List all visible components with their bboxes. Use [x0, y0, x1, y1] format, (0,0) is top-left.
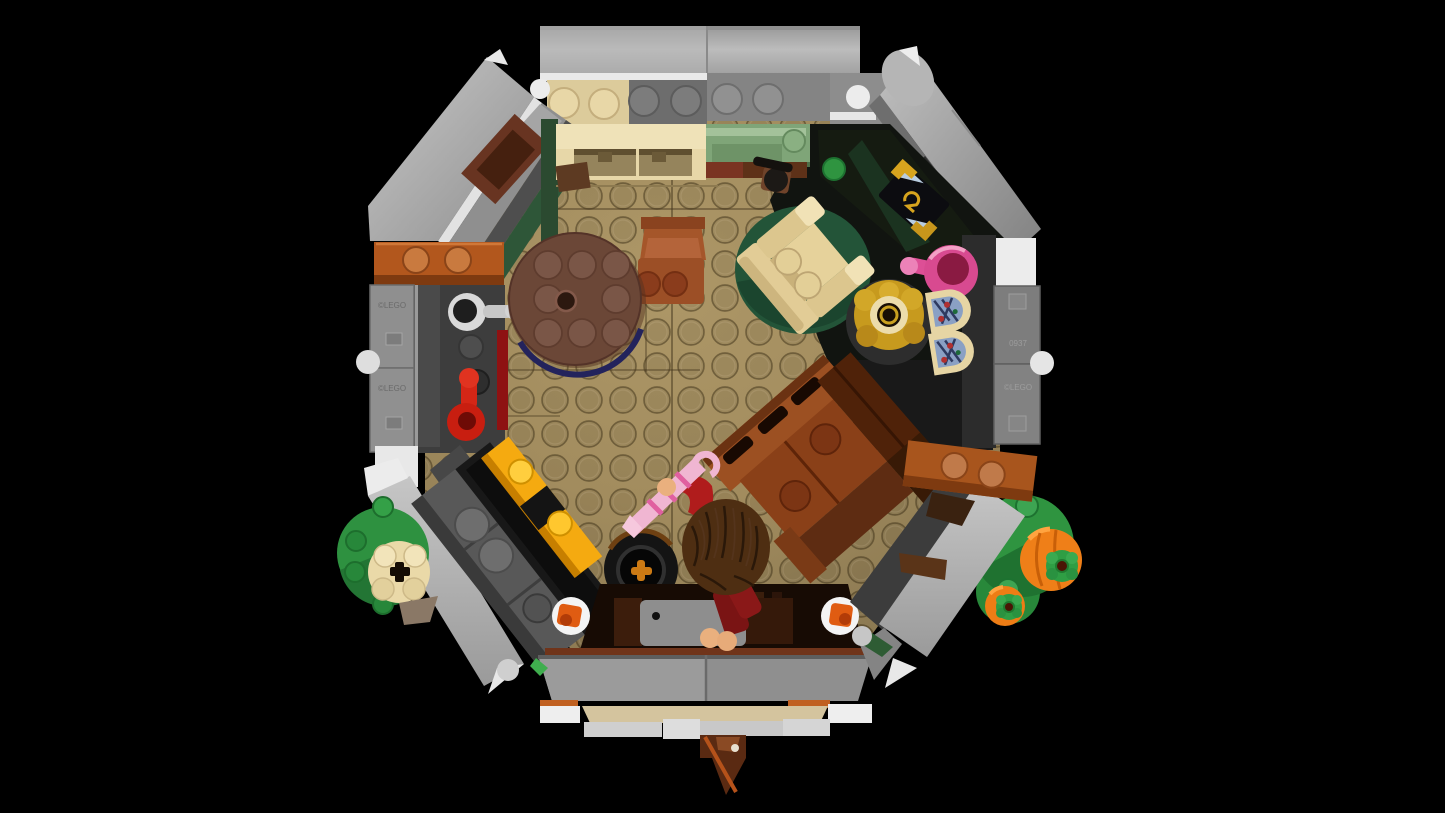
- svg-text:0937: 0937: [1009, 339, 1027, 348]
- svg-text:©LEGO: ©LEGO: [378, 384, 406, 393]
- svg-text:©LEGO: ©LEGO: [1004, 383, 1032, 392]
- svg-text:©LEGO: ©LEGO: [378, 301, 406, 310]
